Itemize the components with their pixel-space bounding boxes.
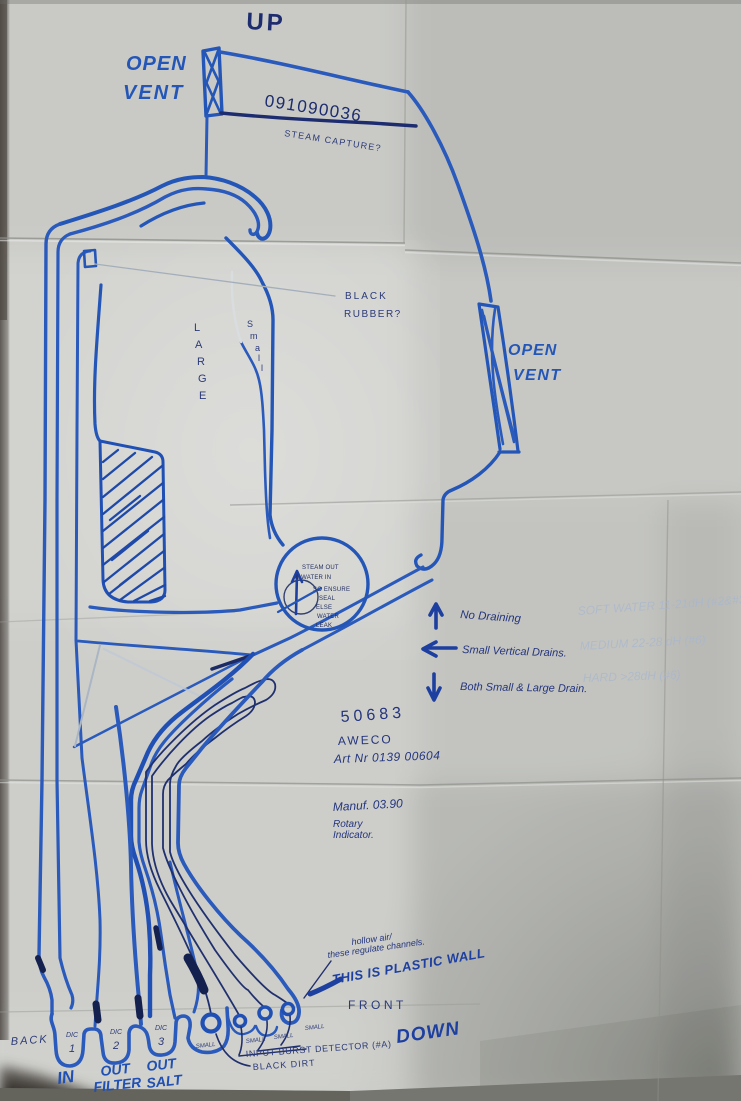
- svg-text:ELSE: ELSE: [316, 605, 332, 611]
- svg-text:G: G: [198, 373, 207, 385]
- svg-text:OPEN: OPEN: [508, 342, 557, 359]
- svg-text:VENT: VENT: [123, 82, 184, 104]
- svg-text:DIC: DIC: [66, 1032, 79, 1039]
- svg-text:WATER: WATER: [317, 614, 339, 620]
- svg-text:VENT: VENT: [513, 367, 562, 384]
- svg-text:l: l: [258, 353, 260, 363]
- svg-text:E: E: [199, 390, 206, 402]
- svg-text:S: S: [247, 319, 253, 329]
- svg-text:Rotary: Rotary: [333, 819, 363, 830]
- svg-text:LEAK: LEAK: [316, 623, 332, 629]
- svg-text:RUBBER?: RUBBER?: [344, 309, 402, 320]
- svg-text:SEAL: SEAL: [319, 596, 336, 602]
- svg-text:Indicator.: Indicator.: [333, 830, 374, 841]
- svg-text:AWECO: AWECO: [338, 732, 393, 748]
- svg-text:SO ENSURE: SO ENSURE: [313, 587, 350, 593]
- svg-text:L: L: [194, 322, 200, 334]
- svg-text:IN: IN: [56, 1067, 76, 1088]
- svg-text:l: l: [261, 363, 263, 373]
- svg-text:& WATER IN: & WATER IN: [295, 575, 331, 581]
- svg-text:BLACK: BLACK: [345, 291, 388, 302]
- svg-text:A: A: [195, 339, 203, 351]
- svg-text:UP: UP: [246, 8, 287, 37]
- svg-text:m: m: [250, 331, 258, 341]
- svg-text:1: 1: [69, 1043, 75, 1055]
- svg-text:OUT: OUT: [146, 1055, 179, 1074]
- svg-text:OPEN: OPEN: [126, 53, 187, 75]
- svg-text:R: R: [197, 356, 205, 368]
- svg-text:FRONT: FRONT: [348, 998, 407, 1012]
- svg-text:Both Small & Large Drain.: Both Small & Large Drain.: [460, 681, 587, 695]
- svg-text:DIC: DIC: [155, 1025, 168, 1032]
- svg-text:2: 2: [112, 1040, 119, 1052]
- svg-text:STEAM OUT: STEAM OUT: [302, 565, 339, 571]
- svg-text:a: a: [255, 343, 260, 353]
- svg-text:DIC: DIC: [110, 1029, 123, 1036]
- svg-text:3: 3: [158, 1036, 165, 1048]
